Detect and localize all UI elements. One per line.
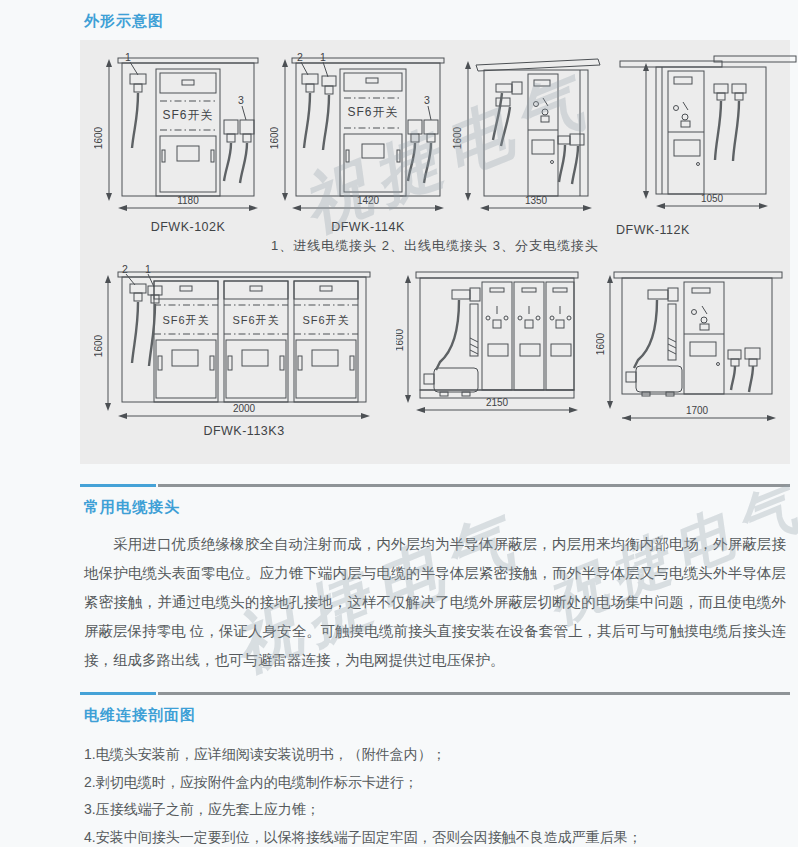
cable-section-title: 常用电缆接头 [84, 498, 790, 517]
cabinet-diagram-dfwk-112k: 1050 DFWK-112K [616, 44, 798, 240]
install-step: 1.电缆头安装前，应详细阅读安装说明书，（附件盒内）； [84, 741, 790, 769]
callout-3: 3 [424, 94, 430, 106]
model-label: DFWK-114K [331, 220, 405, 234]
page-title: 外形示意图 [84, 12, 790, 31]
sf6-switch-label: SF6开关 [302, 314, 349, 326]
model-label: DFWK-102K [151, 220, 226, 234]
dim-width: 1420 [357, 195, 380, 206]
dim-height: 1600 [270, 126, 280, 149]
cabinet-diagram-side-2150: 1600 2150 [396, 258, 594, 430]
dim-height: 1600 [94, 126, 104, 149]
dim-height: 1600 [452, 126, 463, 149]
sf6-switch-label: SF6开关 [162, 108, 213, 122]
cabinet-diagram-side-1350: 1600 1350 [452, 46, 622, 238]
install-step: 4.安装中间接头一定要到位，以保将接线端子固定牢固，否则会因接触不良造成严重后果… [84, 824, 790, 847]
model-label: DFWK-112K [616, 223, 690, 237]
install-step: 2.剥切电缆时，应按附件盒内的电缆制作标示卡进行； [84, 769, 790, 797]
dim-height: 1600 [396, 328, 405, 351]
cabinet-diagram-dfwk-114k: 1600 2 1 3 SF6开关 1420 DFWK-114K [270, 46, 456, 238]
dim-height: 1600 [94, 334, 104, 357]
dim-width: 1180 [177, 195, 199, 206]
dim-width: 2150 [486, 397, 509, 408]
callout-2: 2 [297, 51, 303, 63]
sf6-switch-label: SF6开关 [232, 314, 279, 326]
section-divider [80, 484, 790, 487]
install-steps-list: 1.电缆头安装前，应详细阅读安装说明书，（附件盒内）； 2.剥切电缆时，应按附件… [84, 741, 790, 847]
divider-accent-segment [80, 484, 156, 487]
section-divider [80, 692, 790, 695]
install-section-title: 电维连接剖面图 [84, 706, 790, 725]
cable-section-paragraph: 采用进口优质绝缘橡胶全自动注射而成，内外层均为半导体屏蔽层，内层用来均衡内部电场… [84, 530, 786, 675]
install-step: 3.压接线端子之前，应先套上应力锥； [84, 796, 790, 824]
sf6-switch-label: SF6开关 [347, 105, 398, 119]
divider-accent-segment [80, 692, 156, 695]
dim-width: 2000 [233, 403, 256, 414]
dim-width: 1700 [686, 405, 709, 416]
page-content: 外形示意图 [80, 0, 790, 847]
divider-gray-segment [158, 692, 790, 695]
callout-1: 1 [145, 263, 151, 275]
callout-2: 2 [122, 263, 128, 275]
cabinet-diagram-side-1700: 1600 1700 [596, 258, 798, 440]
callout-3: 3 [238, 94, 244, 106]
dim-height: 1600 [596, 332, 606, 355]
dim-width: 1350 [525, 195, 548, 206]
model-label: DFWK-113K3 [203, 424, 284, 438]
callout-1: 1 [125, 51, 131, 63]
cabinet-diagram-dfwk-113k3: 1600 2 1 SF6开关 SF6开关 SF6开关 2000 DFWK-113… [94, 258, 386, 440]
divider-gray-segment [158, 484, 790, 487]
outline-diagram-panel: 1600 1 3 SF6开关 1180 DFWK-102K [80, 40, 790, 464]
sf6-switch-label: SF6开关 [162, 314, 209, 326]
cabinet-diagram-dfwk-102k: 1600 1 3 SF6开关 1180 DFWK-102K [94, 46, 270, 238]
callout-1: 1 [320, 51, 326, 63]
cable-joint-caption: 1、进线电缆接头 2、出线电缆接头 3、分支电缆接头 [230, 237, 640, 255]
dim-width: 1050 [701, 193, 724, 204]
